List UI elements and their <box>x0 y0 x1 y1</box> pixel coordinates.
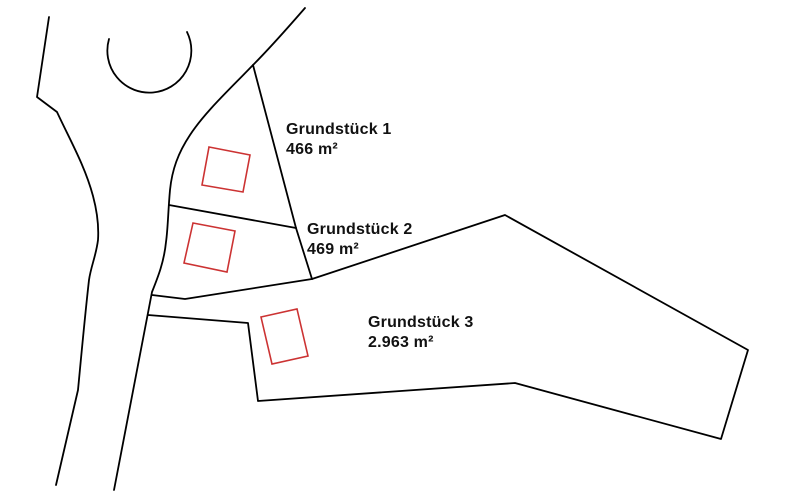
cul-de-sac-arc <box>107 32 191 93</box>
parcel-1-label: Grundstück 1 466 m² <box>286 120 392 160</box>
parcel-2-label: Grundstück 2 469 m² <box>307 220 413 260</box>
building-parcel-2 <box>184 223 235 272</box>
parcel-3-name: Grundstück 3 <box>368 313 474 333</box>
building-parcel-3 <box>261 309 308 364</box>
parcel-2-area: 469 m² <box>307 240 413 260</box>
road-edge-left <box>37 17 98 485</box>
parcel-1-name: Grundstück 1 <box>286 120 392 140</box>
parcel-3-label: Grundstück 3 2.963 m² <box>368 313 474 353</box>
parcel-3-area: 2.963 m² <box>368 333 474 353</box>
parcel1-parcel2-divider <box>169 205 296 228</box>
site-plan: Grundstück 1 466 m² Grundstück 2 469 m² … <box>0 0 800 500</box>
parcel-2-name: Grundstück 2 <box>307 220 413 240</box>
parcel-1-area: 466 m² <box>286 140 392 160</box>
parcel2-south-boundary <box>152 279 312 299</box>
building-parcel-1 <box>202 147 250 192</box>
road-edge-right <box>114 8 305 490</box>
